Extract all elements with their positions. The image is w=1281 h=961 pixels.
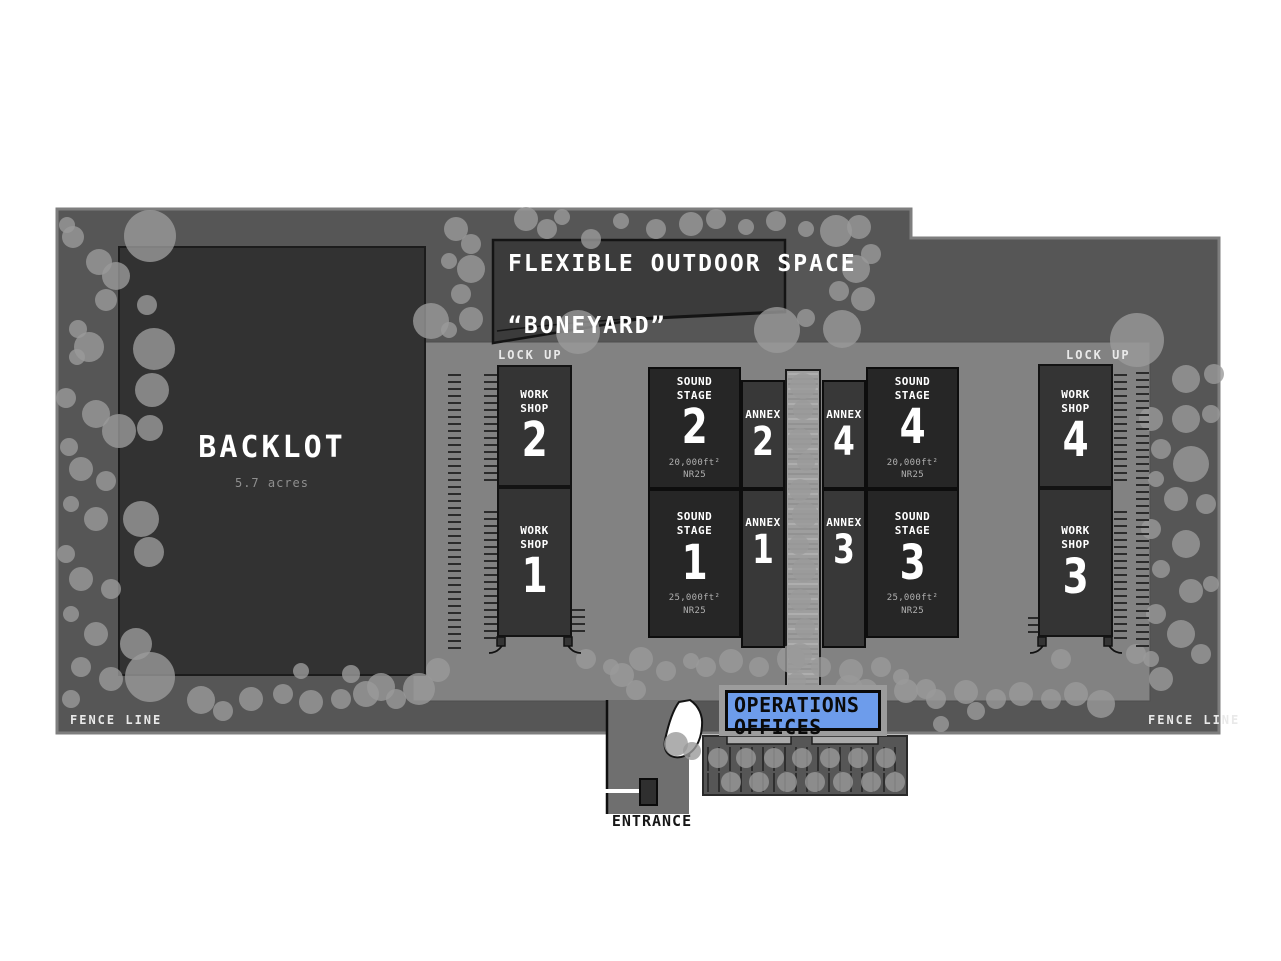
stage4-label1: SOUND xyxy=(895,375,931,388)
tree-icon xyxy=(62,690,80,708)
tree-icon xyxy=(708,748,728,768)
workshop3-number: 3 xyxy=(1062,555,1088,601)
tree-icon xyxy=(239,687,263,711)
tree-icon xyxy=(629,647,653,671)
fence-line-label-left: FENCE LINE xyxy=(70,714,162,726)
workshop4-label1: WORK xyxy=(1061,388,1090,401)
tree-icon xyxy=(721,772,741,792)
tree-icon xyxy=(1152,560,1170,578)
stage3-number: 3 xyxy=(899,541,925,587)
tree-icon xyxy=(1064,682,1088,706)
stage1-label1: SOUND xyxy=(677,510,713,523)
tree-icon xyxy=(1204,364,1224,384)
tree-icon xyxy=(1167,620,1195,648)
tree-icon xyxy=(459,307,483,331)
backlot-label-block: BACKLOT 5.7 acres xyxy=(119,247,425,675)
stage4-area: 20,000ft² xyxy=(887,457,938,471)
tree-icon xyxy=(1141,519,1161,539)
tree-icon xyxy=(1148,471,1164,487)
tree-icon xyxy=(1051,649,1071,669)
tree-icon xyxy=(1203,576,1219,592)
tree-icon xyxy=(861,772,881,792)
tree-icon xyxy=(367,673,395,701)
tree-icon xyxy=(839,659,863,683)
tree-icon xyxy=(96,471,116,491)
tree-icon xyxy=(1139,407,1163,431)
tree-icon xyxy=(885,772,905,792)
tree-icon xyxy=(798,221,814,237)
tree-icon xyxy=(84,507,108,531)
tree-icon xyxy=(1151,439,1171,459)
tree-icon xyxy=(788,643,812,667)
tree-icon xyxy=(646,219,666,239)
building-workshop-1: WORKSHOP 1 xyxy=(497,487,572,637)
annex3-number: 3 xyxy=(833,531,855,569)
tree-icon xyxy=(56,388,76,408)
stage1-noise-rating: NR25 xyxy=(683,606,706,617)
stage3-area: 25,000ft² xyxy=(887,592,938,606)
tree-icon xyxy=(1146,604,1166,624)
tree-icon xyxy=(537,219,557,239)
tree-icon xyxy=(766,211,786,231)
workshop1-number: 1 xyxy=(521,554,547,600)
workshop3-label1: WORK xyxy=(1061,524,1090,537)
building-sound-stage-3: SOUNDSTAGE 3 25,000ft² NR25 xyxy=(866,489,959,638)
tree-icon xyxy=(1172,530,1200,558)
tree-icon xyxy=(441,253,457,269)
tree-icon xyxy=(581,229,601,249)
stage2-noise-rating: NR25 xyxy=(683,470,706,481)
tree-icon xyxy=(1087,690,1115,718)
tree-icon xyxy=(679,212,703,236)
tree-icon xyxy=(656,661,676,681)
tree-icon xyxy=(57,545,75,563)
tree-icon xyxy=(738,219,754,235)
tree-icon xyxy=(954,680,978,704)
backlot-title: BACKLOT xyxy=(198,433,345,463)
tree-icon xyxy=(69,349,85,365)
tree-icon xyxy=(1172,405,1200,433)
tree-icon xyxy=(847,215,871,239)
stage2-label1: SOUND xyxy=(677,375,713,388)
tree-icon xyxy=(613,213,629,229)
annex1-number: 1 xyxy=(752,531,774,569)
tree-icon xyxy=(514,207,538,231)
tree-icon xyxy=(273,684,293,704)
tree-icon xyxy=(1009,682,1033,706)
operations-line2: OFFICES xyxy=(734,715,822,739)
tree-icon xyxy=(554,209,570,225)
stage2-area: 20,000ft² xyxy=(669,457,720,471)
building-operations-offices: OPERATIONS OFFICES xyxy=(725,690,881,731)
building-annex-3: ANNEX 3 xyxy=(822,489,866,648)
tree-icon xyxy=(1172,365,1200,393)
tree-icon xyxy=(101,579,121,599)
tree-icon xyxy=(71,657,91,677)
tree-icon xyxy=(63,606,79,622)
tree-icon xyxy=(805,772,825,792)
stage1-area: 25,000ft² xyxy=(669,592,720,606)
tree-icon xyxy=(1149,667,1173,691)
operations-line1: OPERATIONS xyxy=(734,693,859,717)
tree-icon xyxy=(626,680,646,700)
tree-icon xyxy=(795,618,815,638)
tree-icon xyxy=(833,772,853,792)
tree-icon xyxy=(1041,689,1061,709)
tree-icon xyxy=(986,689,1006,709)
tree-icon xyxy=(788,428,812,452)
tree-icon xyxy=(683,742,701,760)
tree-icon xyxy=(1202,405,1220,423)
tree-icon xyxy=(967,702,985,720)
workshop2-number: 2 xyxy=(521,418,547,464)
backlot-acreage: 5.7 acres xyxy=(235,477,309,489)
tree-icon xyxy=(1196,494,1216,514)
tree-icon xyxy=(736,748,756,768)
building-workshop-2: WORKSHOP 2 xyxy=(497,365,572,487)
stage2-number: 2 xyxy=(681,405,707,451)
fence-line-label-right: FENCE LINE xyxy=(1148,714,1240,726)
tree-icon xyxy=(95,289,117,311)
building-annex-4: ANNEX 4 xyxy=(822,380,866,489)
building-annex-2: ANNEX 2 xyxy=(741,380,785,489)
lockup-label-right: LOCK UP xyxy=(1066,349,1131,361)
tree-icon xyxy=(451,284,471,304)
tree-icon xyxy=(706,209,726,229)
tree-icon xyxy=(59,217,75,233)
tree-icon xyxy=(213,701,233,721)
tree-icon xyxy=(1191,644,1211,664)
tree-icon xyxy=(457,255,485,283)
stage1-number: 1 xyxy=(681,541,707,587)
gate-arm xyxy=(596,789,640,793)
tree-icon xyxy=(69,457,93,481)
tree-icon xyxy=(69,567,93,591)
tree-icon xyxy=(792,502,818,528)
tree-icon xyxy=(811,657,831,677)
studio-lot-site-map: FLEXIBLE OUTDOOR SPACE “BONEYARD” BACKLO… xyxy=(0,0,1281,961)
tree-icon xyxy=(790,373,816,399)
guard-booth xyxy=(640,779,657,805)
tree-icon xyxy=(84,622,108,646)
tree-icon xyxy=(719,649,743,673)
workshop4-number: 4 xyxy=(1062,418,1088,464)
tree-icon xyxy=(792,558,816,582)
tree-icon xyxy=(933,716,949,732)
tree-icon xyxy=(749,772,769,792)
tree-icon xyxy=(60,438,78,456)
annex4-number: 4 xyxy=(833,423,855,461)
tree-icon xyxy=(777,772,797,792)
building-workshop-3: WORKSHOP 3 xyxy=(1038,488,1113,637)
tree-icon xyxy=(63,496,79,512)
tree-icon xyxy=(797,453,815,471)
tree-icon xyxy=(848,748,868,768)
stage4-number: 4 xyxy=(899,405,925,451)
tree-icon xyxy=(331,689,351,709)
building-sound-stage-1: SOUNDSTAGE 1 25,000ft² NR25 xyxy=(648,489,741,638)
boneyard-label: FLEXIBLE OUTDOOR SPACE “BONEYARD” xyxy=(508,249,857,342)
tree-icon xyxy=(1164,487,1188,511)
tree-icon xyxy=(461,234,481,254)
stage3-noise-rating: NR25 xyxy=(901,606,924,617)
tree-icon xyxy=(749,657,769,677)
tree-icon xyxy=(820,748,840,768)
entrance-label: ENTRANCE xyxy=(606,814,698,829)
planter-strip-right xyxy=(812,736,878,744)
annex2-number: 2 xyxy=(752,423,774,461)
tree-icon xyxy=(426,658,450,682)
workshop2-label1: WORK xyxy=(520,388,549,401)
tree-icon xyxy=(789,589,811,611)
tree-icon xyxy=(871,657,891,677)
building-workshop-4: WORKSHOP 4 xyxy=(1038,364,1113,488)
stage4-noise-rating: NR25 xyxy=(901,470,924,481)
tree-icon xyxy=(792,748,812,768)
building-sound-stage-4: SOUNDSTAGE 4 20,000ft² NR25 xyxy=(866,367,959,489)
tree-icon xyxy=(916,679,936,699)
tree-icon xyxy=(893,669,909,685)
tree-icon xyxy=(187,686,215,714)
tree-icon xyxy=(696,657,716,677)
building-sound-stage-2: SOUNDSTAGE 2 20,000ft² NR25 xyxy=(648,367,741,489)
tree-icon xyxy=(1173,446,1209,482)
tree-icon xyxy=(793,400,813,420)
building-annex-1: ANNEX 1 xyxy=(741,489,785,648)
tree-icon xyxy=(764,748,784,768)
tree-icon xyxy=(789,479,811,501)
boneyard-line2: “BONEYARD” xyxy=(508,313,666,339)
tree-icon xyxy=(820,215,852,247)
tree-icon xyxy=(789,535,809,555)
tree-icon xyxy=(876,748,896,768)
tree-icon xyxy=(299,690,323,714)
stage3-label1: SOUND xyxy=(895,510,931,523)
tree-icon xyxy=(1179,579,1203,603)
boneyard-line1: FLEXIBLE OUTDOOR SPACE xyxy=(508,251,857,277)
lockup-label-left: LOCK UP xyxy=(498,349,563,361)
workshop1-label1: WORK xyxy=(520,524,549,537)
